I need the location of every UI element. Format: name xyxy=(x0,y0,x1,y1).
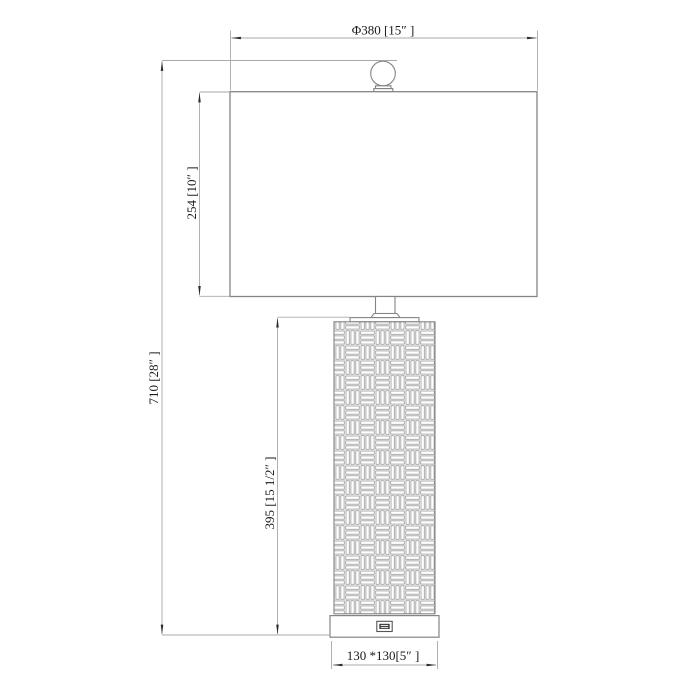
dim-shade-height xyxy=(200,92,231,296)
usb-port-icon xyxy=(377,621,392,631)
dim-label-total-height: 710 [28″ ] xyxy=(146,351,161,404)
dim-label-body-height: 395 [15 1/2″ ] xyxy=(262,457,277,530)
drawing-canvas: Φ380 [15″ ] 710 [28″ ] 254 [10″ ] 395 [1… xyxy=(0,0,700,700)
usb-port-pin-line-1 xyxy=(381,625,388,626)
dim-label-shade-width: Φ380 [15″ ] xyxy=(352,23,415,38)
lamp-outline xyxy=(230,61,537,637)
lamp-technical-drawing: Φ380 [15″ ] 710 [28″ ] 254 [10″ ] 395 [1… xyxy=(0,0,700,700)
neck-plate xyxy=(350,318,419,322)
usb-port-pin-line-2 xyxy=(381,627,388,628)
dim-label-shade-height: 254 [10″ ] xyxy=(184,166,199,219)
lamp-body-weave xyxy=(334,322,435,614)
neck-flare xyxy=(371,314,400,318)
lamp-neck xyxy=(376,297,396,314)
dim-label-base-size: 130 *130[5″ ] xyxy=(347,648,420,663)
lamp-shade xyxy=(230,92,537,297)
finial-ball xyxy=(371,61,396,86)
usb-port-inner xyxy=(379,624,389,629)
